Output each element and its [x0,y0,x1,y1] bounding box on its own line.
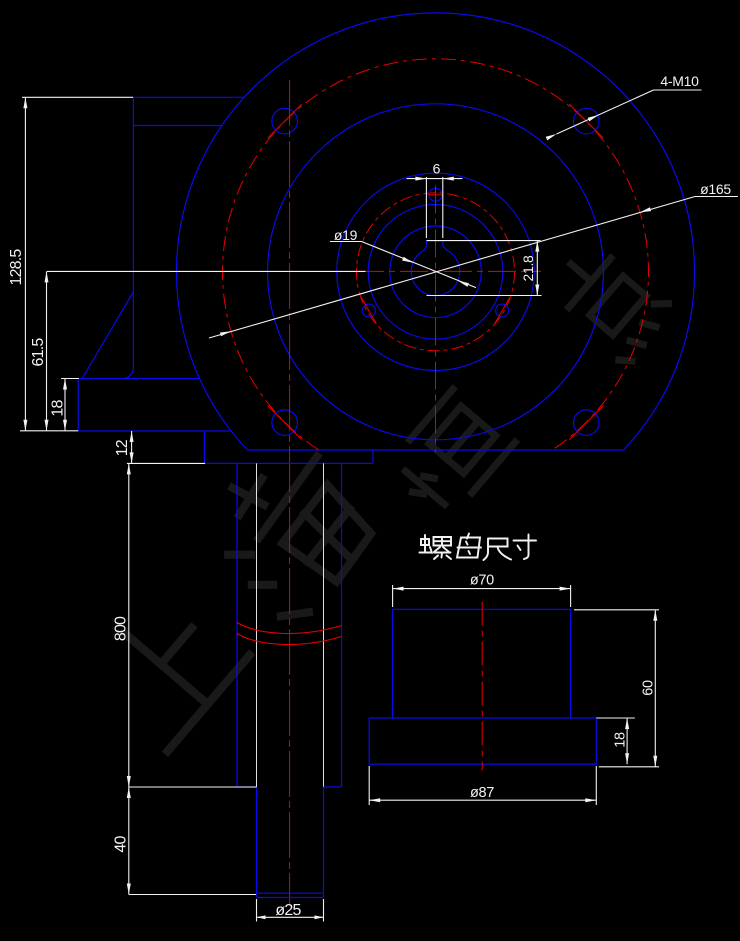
svg-text:ø25: ø25 [275,902,301,919]
svg-text:21.8: 21.8 [520,255,536,282]
svg-text:12: 12 [114,439,131,456]
svg-text:800: 800 [113,616,130,641]
svg-text:61.5: 61.5 [30,338,47,367]
svg-text:18: 18 [50,400,67,417]
svg-text:60: 60 [641,680,657,696]
svg-text:40: 40 [113,836,130,853]
svg-text:6: 6 [433,161,441,177]
svg-text:ø70: ø70 [470,572,494,588]
svg-text:128.5: 128.5 [8,249,25,286]
svg-text:ø87: ø87 [470,785,494,801]
svg-text:ø19: ø19 [334,227,358,243]
svg-text:4-M10: 4-M10 [660,73,699,89]
svg-text:ø165: ø165 [700,181,731,197]
svg-text:18: 18 [613,732,629,748]
